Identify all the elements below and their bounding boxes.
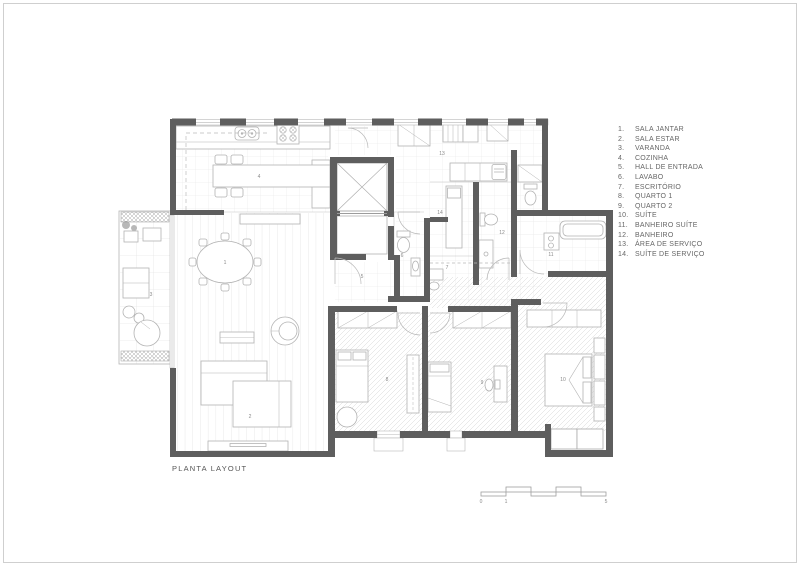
dresser-quarto-1 (407, 355, 419, 413)
room-legend: 1.SALA JANTAR 2.SALA ESTAR 3.VARANDA 4.C… (618, 125, 705, 259)
room-label-suite-servico: 14 (437, 210, 443, 216)
legend-item-label: ÁREA DE SERVIÇO (635, 240, 702, 250)
stove-icon (277, 124, 299, 144)
coffee-table (220, 332, 254, 343)
legend-item-label: BANHEIRO SUÍTE (635, 221, 698, 231)
legend-item-label: SUÍTE DE SERVIÇO (635, 250, 705, 260)
legend-item-number: 3. (618, 144, 635, 154)
scale-bar: 0 1 5 (480, 487, 608, 505)
closet-quarto-2 (453, 311, 511, 328)
toilet-banheiro-icon (480, 213, 498, 226)
tv-console (208, 441, 288, 451)
room-label-suite: 10 (560, 377, 566, 383)
legend-item-number: 6. (618, 173, 635, 183)
toilet-lavabo-icon (397, 231, 410, 253)
legend-item-label: QUARTO 1 (635, 192, 673, 202)
floor-plan: 1 2 3 4 5 6 7 8 9 10 11 12 13 14 0 (0, 0, 800, 566)
legend-item-number: 9. (618, 202, 635, 212)
scale-label-start: 0 (480, 499, 483, 505)
armchair (271, 317, 299, 345)
room-label-escritorio: 7 (446, 265, 449, 271)
room-label-cozinha: 4 (258, 174, 261, 180)
legend-item: 4.COZINHA (618, 154, 705, 164)
suite-window-seat (551, 429, 603, 449)
legend-item-number: 2. (618, 135, 635, 145)
bed-quarto-2 (428, 362, 451, 412)
legend-item-number: 1. (618, 125, 635, 135)
shower-icon (479, 240, 493, 268)
room-label-sala-estar: 2 (249, 414, 252, 420)
legend-item-number: 4. (618, 154, 635, 164)
room-label-hall: 5 (361, 274, 364, 280)
legend-item-number: 12. (618, 231, 635, 241)
planter-bottom (121, 351, 169, 361)
varanda-chair (124, 231, 138, 242)
bathtub-icon (560, 221, 606, 239)
bed-servico (446, 186, 462, 248)
legend-item-number: 8. (618, 192, 635, 202)
varanda-round-table (134, 320, 160, 346)
scale-label-mid: 1 (505, 499, 508, 505)
legend-item-number: 11. (618, 221, 635, 231)
legend-item-number: 10. (618, 211, 635, 221)
drawing-title: PLANTA LAYOUT (172, 464, 247, 473)
pouf-icon (337, 407, 357, 427)
room-label-quarto-2: 9 (481, 380, 484, 386)
legend-item-label: LAVABO (635, 173, 663, 183)
legend-item: 11.BANHEIRO SUÍTE (618, 221, 705, 231)
room-label-quarto-1: 8 (386, 377, 389, 383)
legend-item-number: 7. (618, 183, 635, 193)
legend-item-label: SALA JANTAR (635, 125, 684, 135)
legend-item-number: 14. (618, 250, 635, 260)
kitchen-sink-icon (235, 127, 259, 140)
suite-bath-floor (517, 210, 606, 277)
vanity-sink-icon (544, 233, 559, 250)
legend-item: 12.BANHEIRO (618, 231, 705, 241)
legend-item-label: VARANDA (635, 144, 670, 154)
elevator-shaft (337, 163, 387, 254)
dining-sideboard (240, 214, 300, 224)
bed-suite (545, 354, 592, 406)
legend-item: 9.QUARTO 2 (618, 202, 705, 212)
legend-item-number: 5. (618, 163, 635, 173)
legend-item-number: 13. (618, 240, 635, 250)
varanda-table (143, 228, 161, 241)
legend-item-label: COZINHA (635, 154, 668, 164)
legend-item-label: SALA ESTAR (635, 135, 680, 145)
legend-item: 2.SALA ESTAR (618, 135, 705, 145)
drawing-sheet: 1 2 3 4 5 6 7 8 9 10 11 12 13 14 0 (0, 0, 800, 566)
room-label-area-servico: 13 (439, 151, 445, 157)
room-label-varanda: 3 (150, 292, 153, 298)
room-label-banheiro: 12 (499, 230, 505, 236)
suite-shelves (527, 310, 601, 327)
scale-label-end: 5 (605, 499, 608, 505)
legend-item: 1.SALA JANTAR (618, 125, 705, 135)
legend-item: 7.ESCRITÓRIO (618, 183, 705, 193)
plant-pot-icon (123, 306, 135, 318)
sink-lavabo-icon (411, 258, 420, 276)
legend-item: 5.HALL DE ENTRADA (618, 163, 705, 173)
room-label-sala-jantar: 1 (224, 260, 227, 266)
toilet-wc-icon (524, 184, 537, 205)
legend-item: 6.LAVABO (618, 173, 705, 183)
window-sill (447, 438, 465, 451)
wc-shelf (518, 165, 542, 182)
legend-item-label: BANHEIRO (635, 231, 674, 241)
legend-item-label: ESCRITÓRIO (635, 183, 681, 193)
legend-item-label: SUÍTE (635, 211, 657, 221)
legend-item-label: QUARTO 2 (635, 202, 673, 212)
legend-item: 3.VARANDA (618, 144, 705, 154)
bed-quarto-1 (336, 350, 368, 402)
planter-top (121, 212, 169, 222)
closet-quarto-1 (338, 311, 397, 328)
legend-item: 13.ÁREA DE SERVIÇO (618, 240, 705, 250)
legend-item-label: HALL DE ENTRADA (635, 163, 703, 173)
room-label-banheiro-suite: 11 (548, 252, 553, 258)
legend-item: 10.SUÍTE (618, 211, 705, 221)
legend-item: 14.SUÍTE DE SERVIÇO (618, 250, 705, 260)
window-sill (374, 438, 403, 451)
legend-item: 8.QUARTO 1 (618, 192, 705, 202)
room-label-lavabo: 6 (401, 253, 404, 259)
